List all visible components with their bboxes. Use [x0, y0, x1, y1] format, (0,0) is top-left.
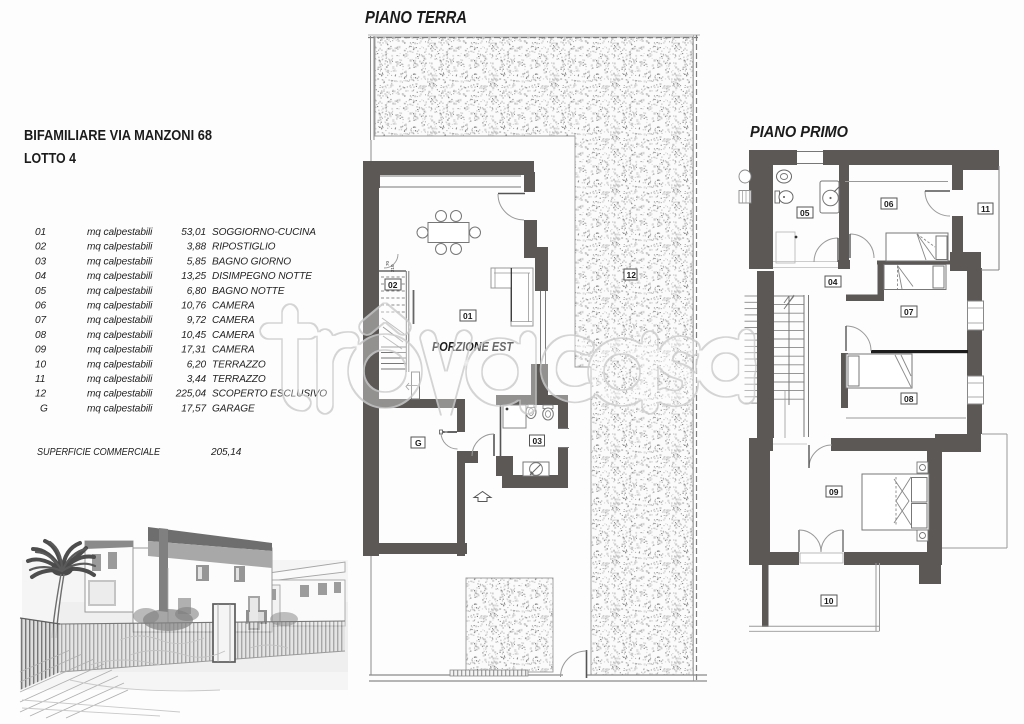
svg-text:PIANO TERRA: PIANO TERRA [365, 7, 467, 27]
svg-text:mq calpestabili: mq calpestabili [87, 345, 153, 356]
svg-text:11: 11 [981, 204, 990, 214]
svg-text:11: 11 [35, 374, 45, 385]
svg-text:mq calpestabili: mq calpestabili [87, 389, 153, 400]
svg-text:02: 02 [388, 280, 398, 290]
svg-text:17,57: 17,57 [181, 403, 206, 414]
svg-text:10: 10 [824, 596, 834, 606]
svg-text:17,31: 17,31 [181, 345, 206, 356]
svg-text:10,76: 10,76 [181, 301, 206, 312]
svg-text:08: 08 [35, 330, 47, 341]
svg-text:mq calpestabili: mq calpestabili [87, 256, 153, 267]
svg-text:BIFAMILIARE VIA MANZONI 68: BIFAMILIARE VIA MANZONI 68 [24, 128, 212, 144]
svg-text:53,01: 53,01 [181, 227, 206, 238]
svg-text:205,14: 205,14 [210, 447, 242, 458]
svg-text:TERRAZZO: TERRAZZO [212, 359, 266, 370]
svg-text:9,72: 9,72 [187, 315, 207, 326]
svg-text:PIANO PRIMO: PIANO PRIMO [750, 124, 848, 141]
svg-text:mq calpestabili: mq calpestabili [87, 286, 153, 297]
svg-text:mq calpestabili: mq calpestabili [87, 315, 153, 326]
svg-text:04: 04 [35, 271, 47, 282]
svg-text:RIPOSTIGLIO: RIPOSTIGLIO [212, 242, 276, 253]
svg-text:mq calpestabili: mq calpestabili [87, 242, 153, 253]
svg-text:LOTTO 4: LOTTO 4 [24, 151, 76, 167]
svg-text:DISIMPEGNO NOTTE: DISIMPEGNO NOTTE [212, 271, 312, 282]
svg-text:01: 01 [35, 227, 46, 238]
svg-text:SOGGIORNO-CUCINA: SOGGIORNO-CUCINA [212, 227, 316, 238]
svg-text:08: 08 [904, 394, 914, 404]
svg-text:3,88: 3,88 [187, 242, 207, 253]
svg-text:mq calpestabili: mq calpestabili [87, 330, 153, 341]
svg-text:06: 06 [35, 301, 47, 312]
svg-text:10: 10 [35, 359, 47, 370]
svg-text:10,45: 10,45 [181, 330, 206, 341]
svg-text:TERRAZZO: TERRAZZO [212, 374, 266, 385]
svg-text:CAMERA: CAMERA [212, 345, 255, 356]
svg-text:GARAGE: GARAGE [212, 403, 255, 414]
svg-text:6,80: 6,80 [187, 286, 207, 297]
svg-text:12: 12 [35, 389, 47, 400]
svg-text:05: 05 [800, 208, 810, 218]
svg-text:07: 07 [35, 315, 47, 326]
svg-text:09: 09 [829, 487, 839, 497]
svg-text:BAGNO NOTTE: BAGNO NOTTE [212, 286, 285, 297]
svg-text:G: G [415, 438, 422, 448]
svg-text:mq calpestabili: mq calpestabili [87, 271, 153, 282]
svg-text:01: 01 [463, 311, 473, 321]
svg-text:CAMERA: CAMERA [212, 315, 255, 326]
svg-text:07: 07 [904, 307, 914, 317]
svg-text:02: 02 [35, 242, 47, 253]
svg-text:6,20: 6,20 [187, 359, 207, 370]
svg-text:12: 12 [627, 270, 637, 280]
svg-text:09: 09 [35, 345, 47, 356]
svg-text:mq calpestabili: mq calpestabili [87, 227, 153, 238]
svg-text:5,85: 5,85 [187, 256, 207, 267]
svg-text:13,25: 13,25 [181, 271, 206, 282]
svg-text:SUPERFICIE COMMERCIALE: SUPERFICIE COMMERCIALE [37, 447, 160, 458]
svg-text:CAMERA: CAMERA [212, 330, 255, 341]
svg-text:mq calpestabili: mq calpestabili [87, 301, 153, 312]
svg-text:03: 03 [35, 256, 47, 267]
svg-text:G: G [40, 403, 48, 414]
svg-text:210: 210 [390, 264, 395, 272]
svg-text:06: 06 [884, 199, 894, 209]
svg-text:3,44: 3,44 [187, 374, 207, 385]
svg-text:04: 04 [828, 277, 838, 287]
svg-text:mq calpestabili: mq calpestabili [87, 403, 153, 414]
svg-text:mq calpestabili: mq calpestabili [87, 374, 153, 385]
svg-text:BAGNO GIORNO: BAGNO GIORNO [212, 256, 291, 267]
svg-text:05: 05 [35, 286, 47, 297]
svg-text:mq calpestabili: mq calpestabili [87, 359, 153, 370]
svg-text:CAMERA: CAMERA [212, 301, 255, 312]
svg-text:225,04: 225,04 [175, 389, 207, 400]
svg-text:03: 03 [533, 436, 543, 446]
